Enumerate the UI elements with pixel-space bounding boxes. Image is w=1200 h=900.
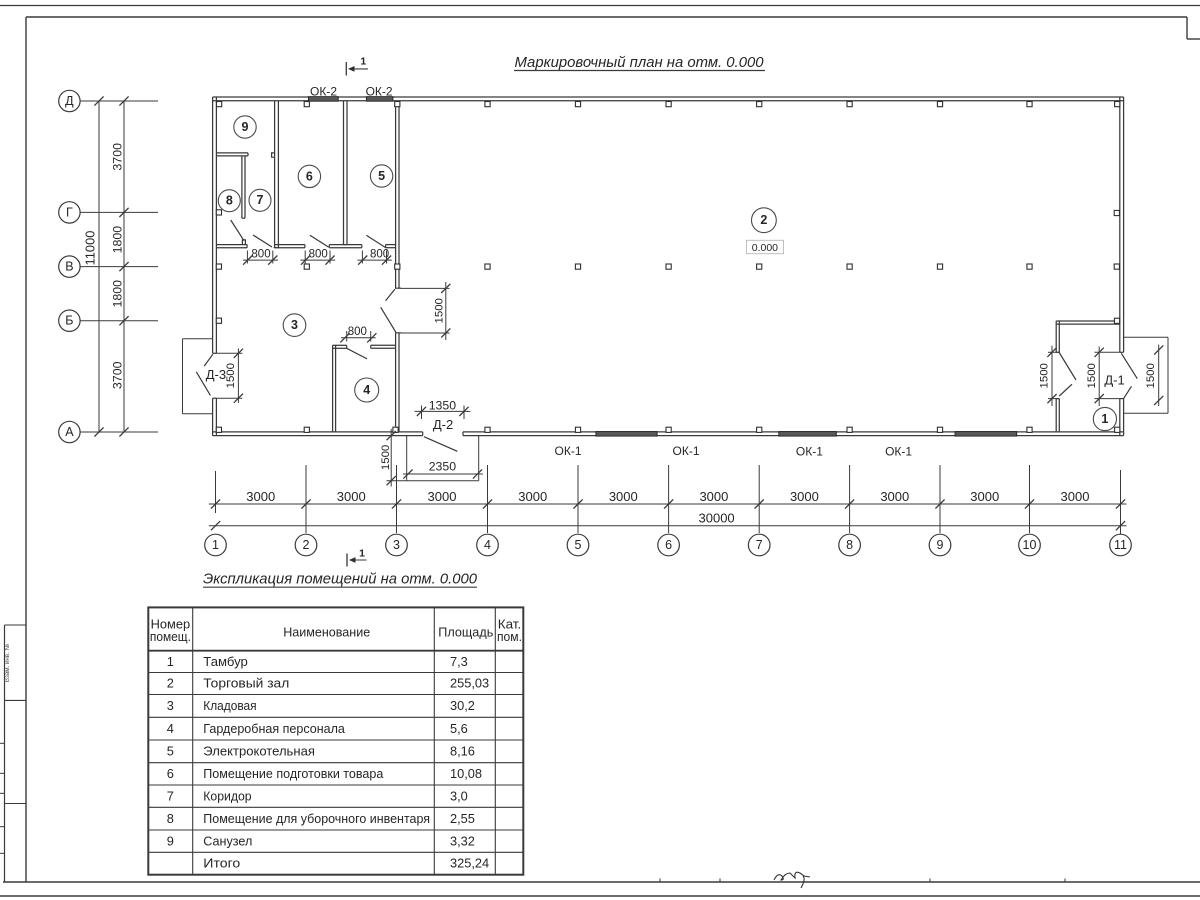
svg-text:4: 4 (363, 383, 370, 397)
svg-text:Коридор: Коридор (203, 788, 251, 803)
svg-text:Д: Д (65, 94, 74, 108)
svg-text:Помещение для уборочного инвен: Помещение для уборочного инвентаря (203, 811, 430, 826)
svg-text:11000: 11000 (83, 231, 98, 266)
svg-text:7: 7 (756, 538, 763, 552)
svg-text:2,55: 2,55 (450, 811, 475, 826)
svg-text:1800: 1800 (111, 226, 125, 254)
svg-text:3: 3 (167, 698, 174, 713)
svg-text:Д-1: Д-1 (1104, 373, 1124, 388)
svg-text:3000: 3000 (1061, 489, 1090, 504)
svg-text:3000: 3000 (337, 489, 366, 504)
svg-text:3: 3 (393, 538, 400, 552)
svg-text:2: 2 (303, 538, 310, 552)
svg-text:1500: 1500 (1086, 363, 1098, 388)
svg-text:ОК-2: ОК-2 (310, 84, 337, 98)
svg-text:В: В (65, 259, 73, 273)
svg-text:Б: Б (65, 314, 73, 328)
svg-text:6: 6 (167, 766, 174, 781)
svg-text:ОК-1: ОК-1 (555, 444, 582, 458)
svg-text:30,2: 30,2 (450, 698, 475, 713)
svg-text:3,0: 3,0 (450, 788, 468, 803)
svg-text:1: 1 (359, 547, 365, 559)
svg-text:9: 9 (242, 120, 249, 134)
svg-text:1: 1 (212, 538, 219, 552)
svg-text:3000: 3000 (518, 489, 547, 504)
svg-text:2: 2 (167, 676, 174, 691)
svg-text:1500: 1500 (1145, 363, 1157, 388)
svg-text:1: 1 (360, 55, 366, 67)
svg-text:1800: 1800 (111, 280, 125, 308)
svg-text:8: 8 (846, 538, 853, 552)
svg-text:Тамбур: Тамбур (203, 654, 248, 669)
svg-text:1: 1 (167, 654, 174, 669)
svg-text:1: 1 (1101, 412, 1108, 426)
svg-text:ОК-1: ОК-1 (673, 444, 700, 458)
svg-text:1500: 1500 (433, 298, 445, 323)
svg-text:Помещение подготовки товара: Помещение подготовки товара (203, 766, 384, 781)
svg-text:3000: 3000 (790, 489, 819, 504)
svg-text:ОК-2: ОК-2 (366, 84, 393, 98)
svg-text:Экспликация помещений на отм.: Экспликация помещений на отм. 0.000 (203, 571, 478, 588)
svg-text:255,03: 255,03 (450, 676, 489, 691)
svg-text:7: 7 (257, 193, 264, 207)
svg-text:2350: 2350 (429, 460, 457, 474)
svg-text:30000: 30000 (699, 511, 735, 526)
svg-text:Д-3: Д-3 (206, 367, 226, 382)
svg-text:6: 6 (306, 169, 313, 183)
svg-text:3700: 3700 (111, 361, 125, 389)
svg-text:8: 8 (167, 811, 174, 826)
svg-text:9: 9 (937, 538, 944, 552)
svg-text:Наименование: Наименование (283, 624, 370, 639)
svg-text:2: 2 (760, 213, 767, 227)
svg-text:9: 9 (167, 833, 174, 848)
svg-text:3000: 3000 (428, 489, 457, 504)
svg-text:3000: 3000 (699, 489, 728, 504)
svg-text:800: 800 (309, 249, 328, 261)
svg-text:3000: 3000 (609, 489, 638, 504)
svg-text:1500: 1500 (1039, 363, 1051, 388)
svg-text:Взам. инв. №: Взам. инв. № (4, 643, 11, 682)
svg-text:4: 4 (484, 538, 491, 552)
svg-text:800: 800 (370, 249, 389, 261)
svg-text:пом.: пом. (497, 629, 522, 644)
svg-text:0.000: 0.000 (752, 242, 778, 254)
svg-text:11: 11 (1114, 538, 1127, 552)
svg-text:ОК-1: ОК-1 (885, 444, 912, 458)
svg-text:5: 5 (167, 744, 174, 759)
svg-text:5: 5 (575, 538, 582, 552)
svg-text:Торговый зал: Торговый зал (203, 676, 289, 691)
svg-text:помещ.: помещ. (150, 629, 191, 644)
svg-text:Д-2: Д-2 (433, 417, 453, 432)
svg-text:1500: 1500 (225, 363, 237, 388)
svg-text:3,32: 3,32 (450, 833, 475, 848)
svg-text:1500: 1500 (380, 445, 392, 470)
svg-text:10,08: 10,08 (450, 766, 482, 781)
svg-text:6: 6 (665, 538, 672, 552)
svg-text:3000: 3000 (970, 489, 999, 504)
svg-text:800: 800 (348, 326, 367, 338)
svg-text:5,6: 5,6 (450, 721, 468, 736)
svg-text:Площадь: Площадь (438, 624, 493, 639)
svg-text:10: 10 (1023, 538, 1037, 552)
svg-text:Маркировочный план на отм. 0.0: Маркировочный план на отм. 0.000 (515, 54, 765, 71)
svg-text:800: 800 (251, 249, 270, 261)
svg-text:8: 8 (226, 194, 233, 208)
svg-text:5: 5 (378, 169, 385, 183)
svg-text:Санузел: Санузел (203, 833, 252, 848)
svg-text:7,3: 7,3 (450, 654, 468, 669)
svg-text:3000: 3000 (246, 489, 275, 504)
svg-text:3700: 3700 (111, 143, 125, 171)
svg-text:7: 7 (167, 788, 174, 803)
svg-text:1350: 1350 (429, 398, 457, 412)
svg-text:ОК-1: ОК-1 (796, 444, 823, 458)
svg-text:8,16: 8,16 (450, 744, 475, 759)
svg-text:Г: Г (66, 205, 73, 219)
svg-text:А: А (65, 425, 74, 439)
svg-text:Гардеробная персонала: Гардеробная персонала (203, 721, 345, 736)
svg-text:3: 3 (291, 318, 298, 332)
svg-text:Электрокотельная: Электрокотельная (203, 744, 315, 759)
svg-text:Кладовая: Кладовая (203, 698, 256, 713)
svg-text:325,24: 325,24 (450, 856, 489, 871)
svg-text:4: 4 (167, 721, 174, 736)
svg-text:3000: 3000 (880, 489, 909, 504)
svg-text:Итого: Итого (203, 856, 240, 871)
